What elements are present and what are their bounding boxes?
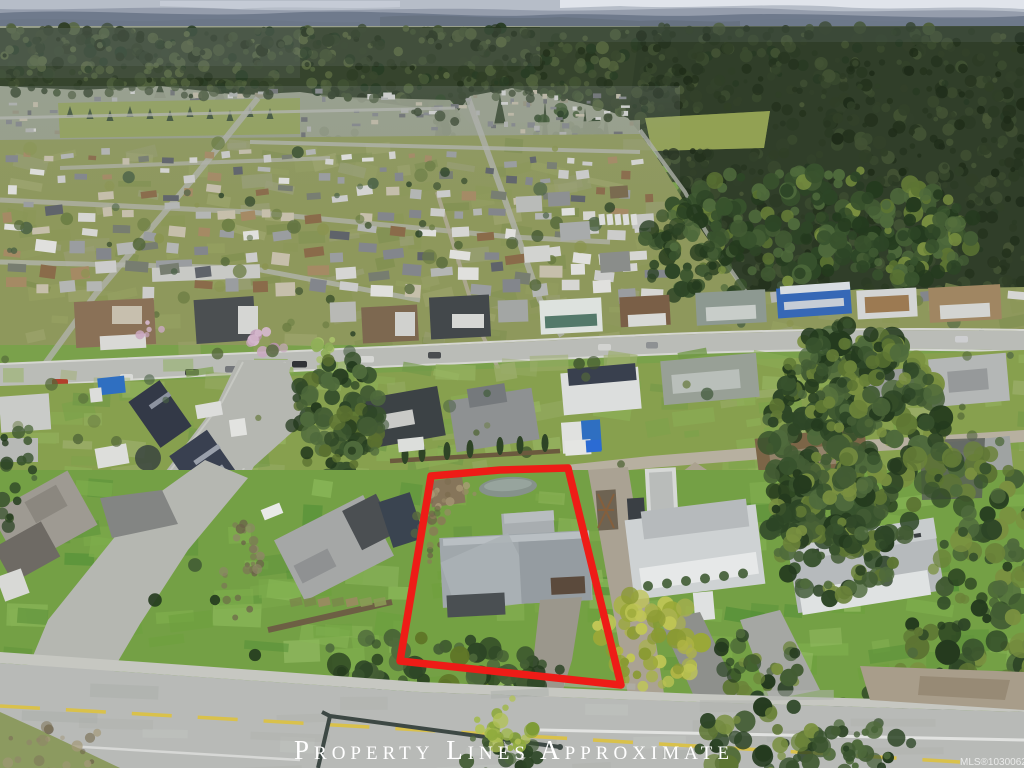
svg-text:MLS®1030062: MLS®1030062: [960, 757, 1024, 768]
svg-text:Property Lines Approximate: Property Lines Approximate: [294, 735, 734, 765]
